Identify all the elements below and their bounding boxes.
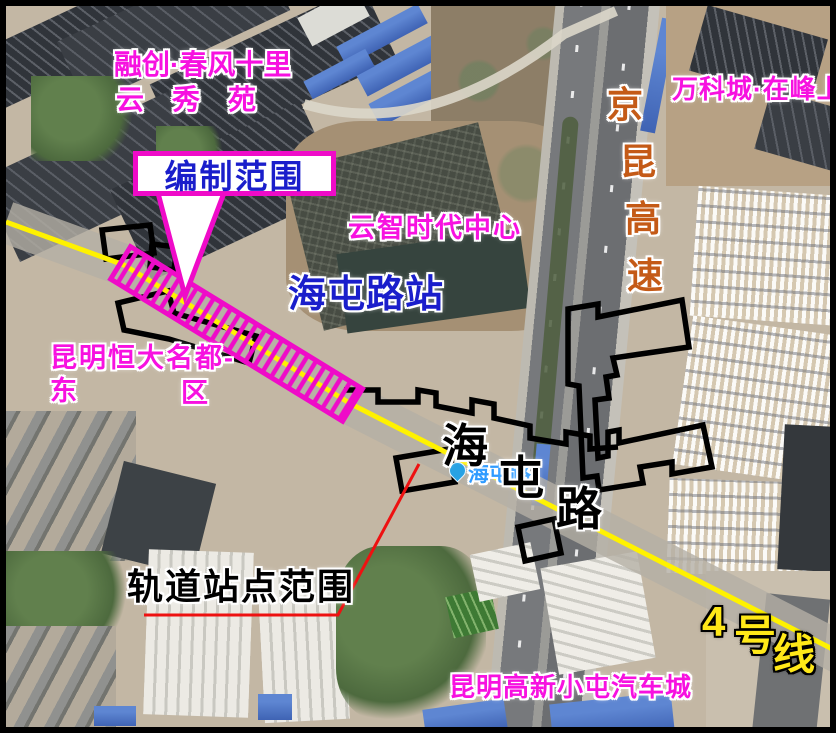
expressway-char: 昆 xyxy=(620,133,663,185)
metro-line-char: 4 xyxy=(702,600,725,644)
label-estate-west-line1: 昆明恒大名都- xyxy=(50,344,235,372)
road-name-char: 屯 xyxy=(498,454,544,502)
expressway-char: 京 xyxy=(607,76,663,128)
metro-line-char: 号 xyxy=(734,614,776,658)
label-auto-city: 昆明高新小屯汽车城 xyxy=(449,674,692,701)
expressway-char: 速 xyxy=(627,247,663,299)
road-name-char: 海 xyxy=(442,422,488,470)
planning-map: 融创·春风十里 云 秀 苑 万科城·在峰上 京 昆 高 速 编制范围 云智时代中… xyxy=(0,0,836,733)
label-center-tower: 云智时代中心 xyxy=(348,214,522,242)
bg-white-road xyxy=(304,11,616,114)
label-estate-west-line2-right: 区 xyxy=(181,379,208,407)
expressway-char: 高 xyxy=(625,190,663,242)
label-station: 海屯路站 xyxy=(288,276,444,316)
metro-line-char: 线 xyxy=(773,633,815,677)
label-estate-topright: 万科城·在峰上 xyxy=(672,76,836,103)
label-estate-topleft-line1: 融创·春风十里 xyxy=(114,50,291,79)
road-name-char: 路 xyxy=(556,485,602,533)
label-rail-scope: 轨道站点范围 xyxy=(127,568,355,606)
label-estate-west-line2-left: 东 xyxy=(50,377,77,405)
planning-scope-callout: 编制范围 xyxy=(133,151,336,196)
label-estate-topleft-line2: 云 秀 苑 xyxy=(116,85,256,114)
label-jingkun-expressway: 京 昆 高 速 xyxy=(607,76,663,299)
